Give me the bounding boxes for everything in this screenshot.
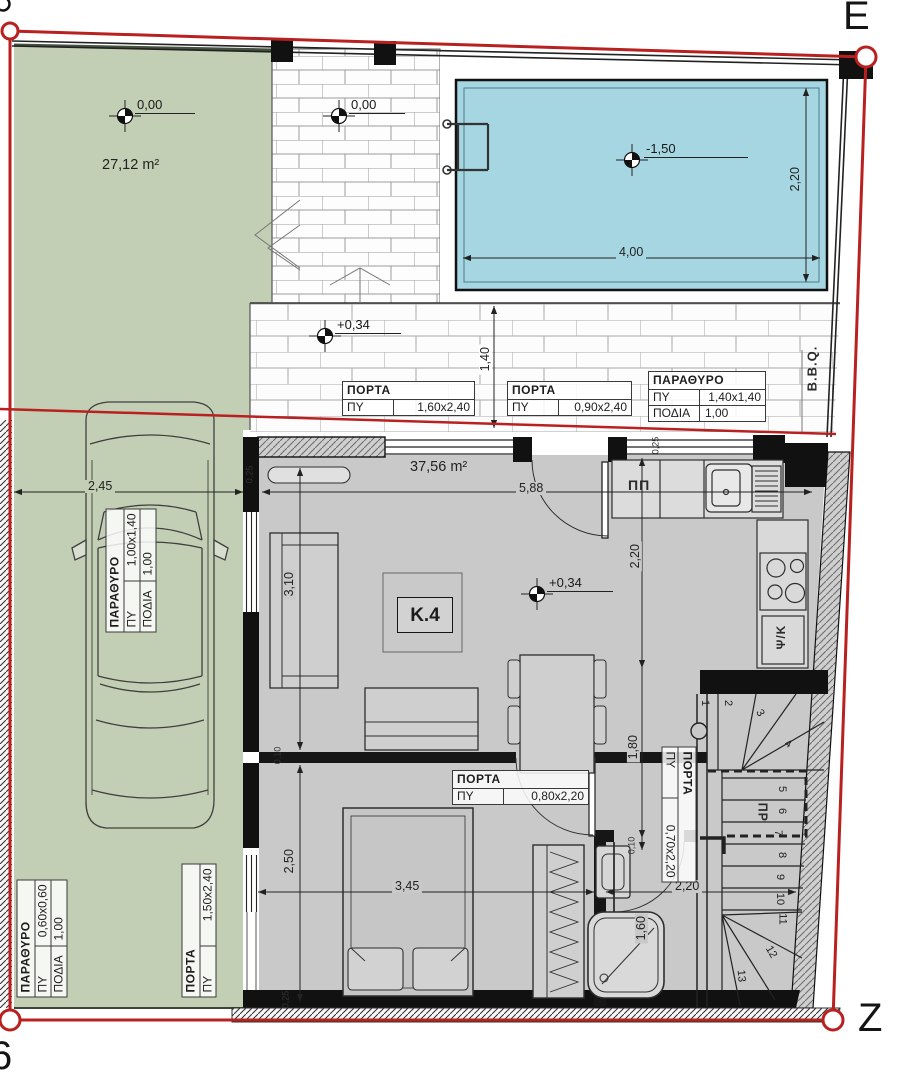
stair-number: 8 xyxy=(776,852,788,858)
dishwasher-label: ΠΠ xyxy=(628,478,650,492)
door-schedule-5: ΠΟΡΤΑ ΠΥ0,70x2,20 xyxy=(662,747,697,883)
stair-number: 2 xyxy=(722,700,734,706)
boundary-marker xyxy=(0,1010,20,1030)
stair-direction-label: ΠΡ xyxy=(756,797,769,827)
chair-icon xyxy=(508,660,520,698)
door-schedule-1: ΠΟΡΤΑ ΠΥ1,60x2,40 xyxy=(342,381,475,416)
stair-number: 13 xyxy=(735,969,748,982)
chair-icon xyxy=(508,706,520,744)
window-living-left xyxy=(247,512,257,612)
dim-wall: 0,25 xyxy=(651,436,660,456)
dim-bedroom-width: 3,45 xyxy=(392,880,422,893)
stair-number: 7 xyxy=(772,830,784,836)
door-bedroom-left xyxy=(247,912,256,990)
pillow-icon xyxy=(348,948,403,990)
wall-bedroom-top xyxy=(259,752,516,763)
corner-label-6: 6 xyxy=(0,1036,12,1076)
dim-living-depth: 3,10 xyxy=(283,569,296,599)
door-schedule-4: ΠΟΡΤΑ ΠΥ0,80x2,20 xyxy=(452,770,589,805)
dim-hall-depth: 1,80 xyxy=(627,732,640,762)
stair-number: 11 xyxy=(777,913,789,924)
dim-kitchen-depth: 2,20 xyxy=(629,541,642,571)
corner-label-z: Z xyxy=(858,998,882,1038)
coffee-table-icon xyxy=(365,688,478,750)
door-schedule-2: ΠΟΡΤΑ ΠΥ0,90x2,40 xyxy=(507,381,632,416)
stair-number: 10 xyxy=(774,893,786,905)
elevation-pool: -1,50 xyxy=(644,142,748,158)
window-bedroom-left xyxy=(247,855,257,912)
door-schedule-3: ΠΟΡΤΑ ΠΥ1,50x2,40 xyxy=(182,864,217,998)
door-leaf xyxy=(602,462,608,538)
newel-post xyxy=(691,723,707,739)
stair-number: 1 xyxy=(699,700,711,706)
boundary-marker xyxy=(2,23,18,39)
fence-post xyxy=(271,38,293,62)
dim-terrace-depth: 1,40 xyxy=(479,344,492,374)
unit-area-label: 37,56 m² xyxy=(410,460,467,475)
stair-number: 5 xyxy=(776,786,788,792)
wall-bottom xyxy=(243,990,800,1008)
window-schedule-1: ΠΑΡΑΘΥΡΟ ΠΥ1,40x1,40 ΠΟΔΙΑ1,00 xyxy=(648,371,766,422)
elevation-garden: 0,00 xyxy=(135,98,195,114)
dim-pool-length: 4,00 xyxy=(616,246,646,259)
unit-id-label: K.4 xyxy=(397,597,453,633)
chair-icon xyxy=(594,660,606,698)
bbq-label: B.B.Q. xyxy=(806,329,819,409)
dim-wall: 0,25 xyxy=(245,465,254,485)
dim-living-width: 5,88 xyxy=(516,482,546,495)
floor-plan: E Z 6 27,12 m² 37,56 m² K.4 0,00 0,00 -1… xyxy=(0,0,900,1079)
sideboard-icon xyxy=(268,467,350,483)
dim-wall: 0,25 xyxy=(281,990,290,1010)
dim-wall: 0,10 xyxy=(273,746,282,766)
boundary-marker xyxy=(823,1010,843,1030)
stair-number: 6 xyxy=(776,808,788,814)
window-schedule-2: ΠΑΡΑΘΥΡΟ ΠΥ1,00x1,40 ΠΟΔΙΑ1,00 xyxy=(106,509,157,633)
sofa-icon xyxy=(270,533,338,688)
corner-label-e: E xyxy=(843,0,870,36)
boundary-marker xyxy=(856,47,876,67)
elevation-living: +0,34 xyxy=(547,576,613,592)
elevation-terrace: +0,34 xyxy=(335,318,401,334)
window-schedule-3: ΠΑΡΑΘΥΡΟ ΠΥ0,60x0,60 ΠΟΔΙΑ1,00 xyxy=(17,880,68,998)
clipped-marker xyxy=(0,0,10,11)
dim-shower: 1,60 xyxy=(635,913,648,943)
elevation-patio: 0,00 xyxy=(349,98,405,114)
dim-bedroom-depth: 2,50 xyxy=(283,846,296,876)
dim-car-bay: 2,45 xyxy=(85,480,115,493)
pillow-icon xyxy=(413,948,468,990)
dim-wall: 0,10 xyxy=(627,836,636,856)
dining-table-icon xyxy=(520,655,594,773)
shower-icon xyxy=(588,912,664,998)
dim-pool-width: 2,20 xyxy=(789,164,802,194)
stair-number: 9 xyxy=(774,874,786,880)
chair-icon xyxy=(594,706,606,744)
wall-stairs xyxy=(700,670,828,694)
window-top-left xyxy=(385,440,513,454)
garden-area-label: 27,12 m² xyxy=(102,158,159,173)
window-kitchen xyxy=(627,440,753,454)
fridge-label: Ψ/Κ xyxy=(775,617,787,657)
fence-post xyxy=(374,41,396,65)
